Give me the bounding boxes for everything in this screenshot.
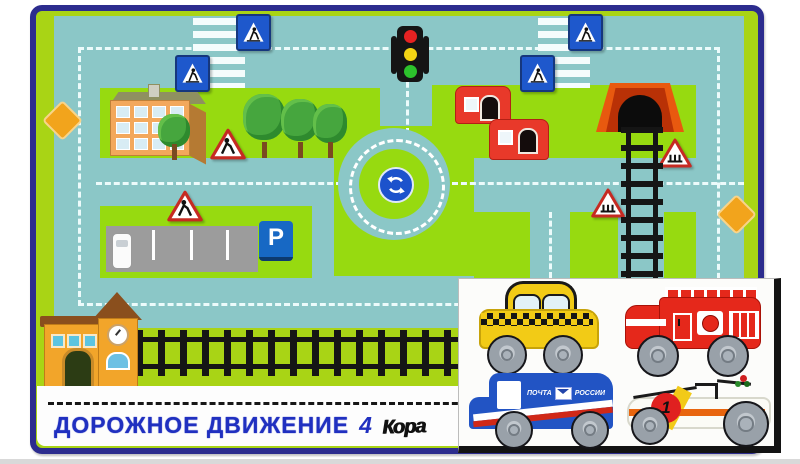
wheel [637, 335, 679, 377]
railway-crossing-sign [591, 188, 625, 218]
children-warning-sign [210, 128, 246, 160]
parking-divider [226, 230, 229, 260]
flag-dot-green [744, 381, 750, 387]
wheel [543, 335, 583, 375]
roundabout-sign-icon [378, 167, 414, 203]
red-house [489, 119, 549, 160]
fire-truck-stripe [626, 319, 666, 326]
fire-truck-emblem [697, 311, 723, 335]
race-car-outline [715, 383, 718, 399]
pedestrian-crossing-sign [236, 14, 271, 51]
station-tower-window [106, 352, 130, 370]
pedestrian-crossing-sign [175, 55, 210, 92]
wheel [571, 411, 609, 449]
middle-road-dash-right [452, 182, 744, 185]
parking-sign: P [259, 221, 293, 261]
middle-road-dash-left [96, 182, 342, 185]
race-car-outline [695, 383, 717, 386]
tree [243, 94, 285, 158]
wheel [707, 335, 749, 377]
issue-number: 4 [359, 412, 372, 439]
taxi-checker-band [481, 313, 593, 326]
house-door [518, 128, 538, 154]
brand-logo: Кора [381, 415, 425, 439]
mail-truck-label: ПОЧТА РОССИИ [527, 387, 611, 400]
race-car-flag-detail [735, 375, 751, 391]
parking-divider [152, 230, 155, 260]
traffic-light [397, 26, 423, 82]
house-window [464, 97, 479, 112]
parking-divider [190, 230, 193, 260]
building-side-wall [190, 104, 206, 165]
title-row: ДОРОЖНОЕ ДВИЖЕНИЕ 4 Кора [54, 412, 425, 439]
envelope-icon [555, 387, 572, 400]
house-door [480, 95, 500, 121]
play-mat-page: P ДОРОЖНОЕ ДВИЖЕНИЕ 4 Кора [0, 0, 800, 464]
railway-crossing-sign [658, 138, 692, 168]
tree [313, 104, 347, 158]
circular-arrows-icon [385, 174, 407, 196]
parked-car [112, 233, 132, 269]
mail-label-left: ПОЧТА [527, 390, 552, 397]
page-title: ДОРОЖНОЕ ДВИЖЕНИЕ [54, 412, 349, 439]
mail-truck-window [497, 381, 521, 409]
station-window [51, 334, 65, 348]
children-warning-sign [167, 190, 203, 222]
cutout-panel: ПОЧТА РОССИИ 1 [458, 278, 781, 453]
pedestrian-crossing-sign [520, 55, 555, 92]
vertical-road-dash-bottom [549, 212, 552, 278]
traffic-light-red [404, 30, 417, 43]
wheel [723, 401, 769, 447]
house-window [498, 130, 513, 145]
station-window [67, 334, 81, 348]
page-bottom-edge [0, 459, 800, 464]
mail-label-right: РОССИИ [575, 390, 605, 397]
traffic-light-green [404, 65, 417, 78]
parking-sign-letter: P [268, 224, 284, 251]
traffic-light-yellow [404, 48, 417, 61]
station-clock [107, 324, 129, 346]
pedestrian-crossing-sign [568, 14, 603, 51]
railway-track-vertical [621, 127, 663, 285]
building-dormer [148, 84, 160, 98]
tree [158, 114, 190, 160]
wheel [631, 407, 669, 445]
station-window [83, 334, 97, 348]
fire-truck-door [673, 313, 692, 341]
wheel [487, 335, 527, 375]
flag-dot-green [735, 381, 741, 387]
wheel [495, 411, 533, 449]
